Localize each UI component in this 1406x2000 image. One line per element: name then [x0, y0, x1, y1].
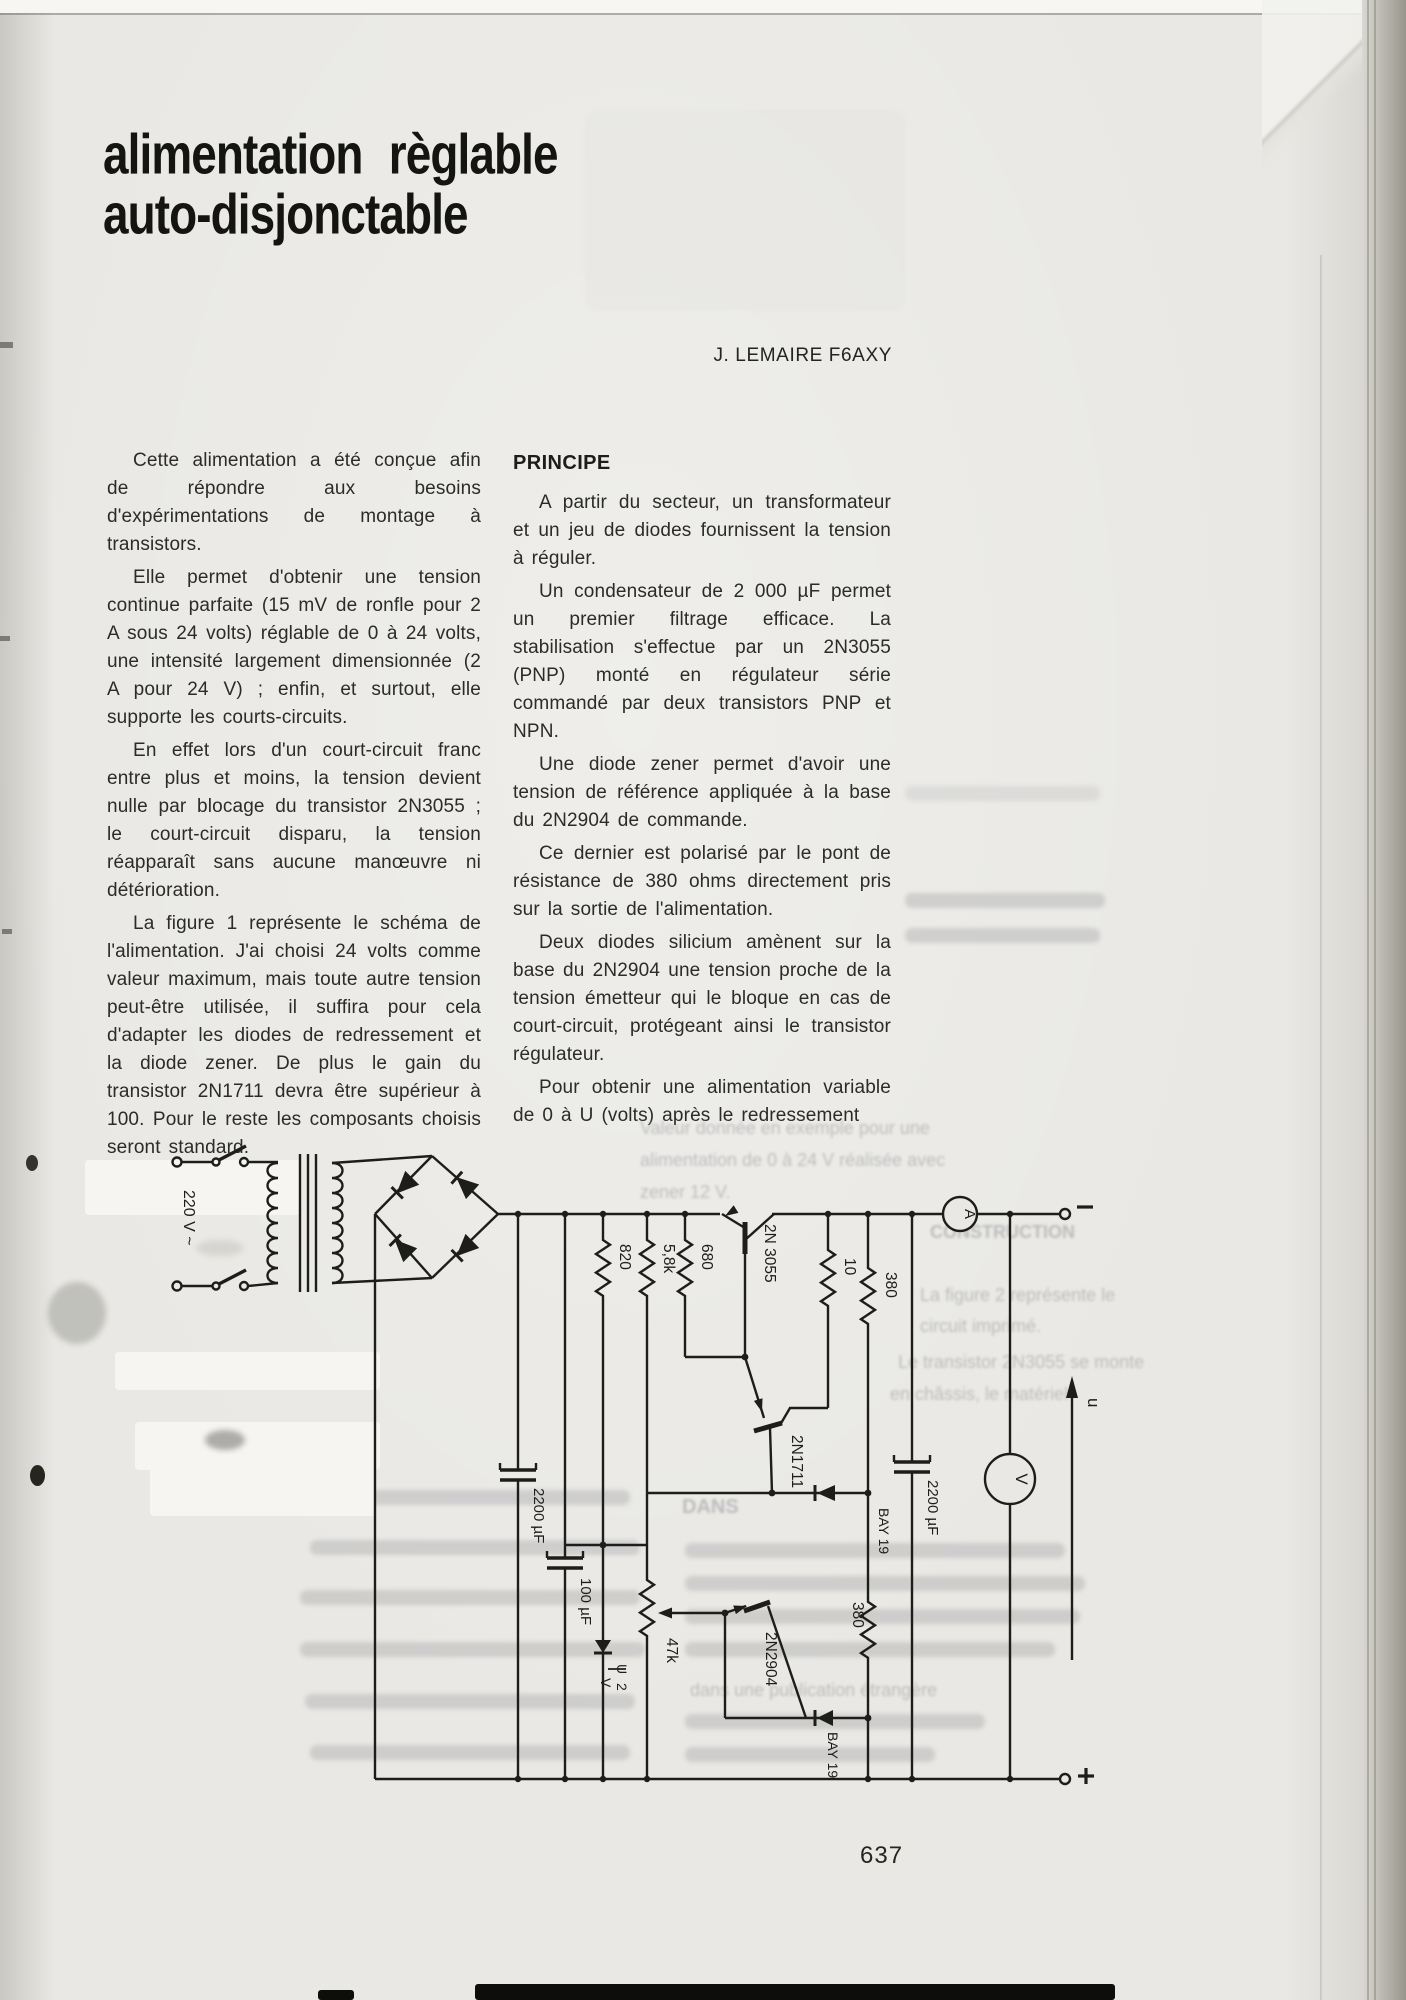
output-terminal-minus: [1060, 1207, 1093, 1219]
voltmeter: [985, 1214, 1035, 1779]
label-r820: 820: [616, 1244, 633, 1270]
resistor-10: [821, 1214, 835, 1408]
left-column: Cette alimentation a été conçue afin de …: [107, 447, 481, 1167]
page-corner-fold: [1262, 0, 1362, 185]
edge-mark: [0, 342, 13, 348]
label-mains: 220 V ~: [180, 1190, 197, 1246]
label-u: u: [1084, 1398, 1100, 1407]
label-r380a: 380: [882, 1272, 899, 1298]
right-column: PRINCIPE A partir du secteur, un transfo…: [513, 447, 891, 1135]
page-crease: [1320, 255, 1323, 2000]
paragraph: Un condensateur de 2 000 µF permet un pr…: [513, 578, 891, 746]
resistor-5k8: [640, 1214, 654, 1493]
edge-mark: [2, 929, 12, 934]
scan-smudge: [48, 1282, 106, 1344]
label-q1: 2N 3055: [761, 1224, 778, 1283]
page-edge-line: [1374, 0, 1376, 2000]
section-heading: PRINCIPE: [513, 449, 891, 477]
bridge-rectifier: [375, 1156, 498, 1278]
label-r380b: 380: [849, 1602, 866, 1628]
scanner-black-bar: [475, 1984, 1115, 2000]
label-voltmeter: V: [1012, 1473, 1031, 1485]
label-d2: BAY 19: [825, 1732, 841, 1778]
showthrough-smudge: [905, 928, 1100, 943]
potentiometer-47k: [640, 1493, 725, 1779]
magazine-page: alimentation règlable auto-disjonctable …: [0, 0, 1406, 2000]
label-c2: 100 µF: [577, 1578, 594, 1625]
paragraph: A partir du secteur, un transformateur e…: [513, 489, 891, 573]
output-terminal-plus: [1060, 1768, 1094, 1784]
showthrough-smudge: [905, 893, 1105, 908]
paragraph: Elle permet d'obtenir une tension contin…: [107, 564, 481, 732]
hole-punch-mark: [26, 1155, 38, 1171]
label-r10: 10: [841, 1258, 858, 1276]
diode-bay19-2: [725, 1613, 868, 1726]
resistor-680: [678, 1214, 692, 1357]
page-edge-line: [1367, 0, 1369, 2000]
svg-text:2: 2: [614, 1683, 630, 1691]
edge-mark: [0, 636, 10, 641]
page-top-shadow-line: [0, 13, 1406, 15]
label-q3: 2N2904: [762, 1632, 779, 1687]
paragraph: Ce dernier est polarisé par le pont de r…: [513, 840, 891, 924]
resistor-820: [596, 1214, 610, 1545]
paragraph: Cette alimentation a été conçue afin de …: [107, 447, 481, 559]
article-title-line2: auto-disjonctable: [103, 182, 558, 248]
label-r47k: 47k: [663, 1638, 680, 1663]
label-ammeter: A: [961, 1209, 978, 1219]
diode-bay19-1: [647, 1485, 868, 1501]
label-c1: 2200 µF: [530, 1488, 547, 1543]
paragraph: Une diode zener permet d'avoir une tensi…: [513, 751, 891, 835]
hole-punch-mark: [30, 1465, 45, 1486]
label-r680: 680: [698, 1244, 715, 1270]
article-title: alimentation règlable auto-disjonctable: [103, 122, 608, 242]
circuit-schematic: 220 V ~ 2N 3055 2N1711 2N2904 820 5,8k 6…: [120, 1140, 1100, 1800]
showthrough-smudge: [585, 110, 905, 310]
page-top-edge: [0, 0, 1406, 13]
svg-text:V: V: [598, 1678, 614, 1688]
article-title-line1: alimentation règlable: [103, 122, 558, 188]
label-d1: BAY 19: [876, 1508, 892, 1554]
transistor-2n1711: [745, 1357, 828, 1493]
capacitor-100uf: [547, 1214, 583, 1779]
ghost-text: Valeur donnée en exemple pour une: [640, 1118, 930, 1139]
paragraph: En effet lors d'un court-circuit franc e…: [107, 737, 481, 905]
label-r58k: 5,8k: [660, 1244, 677, 1274]
page-number: 637: [860, 1842, 903, 1870]
output-voltage-arrow: [1066, 1376, 1078, 1660]
label-c3: 2200 µF: [924, 1480, 941, 1535]
scanner-black-bar: [318, 1990, 354, 2000]
paragraph: La figure 1 représente le schéma de l'al…: [107, 910, 481, 1162]
paragraph: Deux diodes silicium amènent sur la base…: [513, 929, 891, 1069]
author-byline: J. LEMAIRE F6AXY: [650, 345, 892, 367]
diode-icon: [452, 1236, 478, 1261]
label-q2: 2N1711: [788, 1435, 805, 1488]
resistor-380-divider: [861, 1214, 875, 1779]
